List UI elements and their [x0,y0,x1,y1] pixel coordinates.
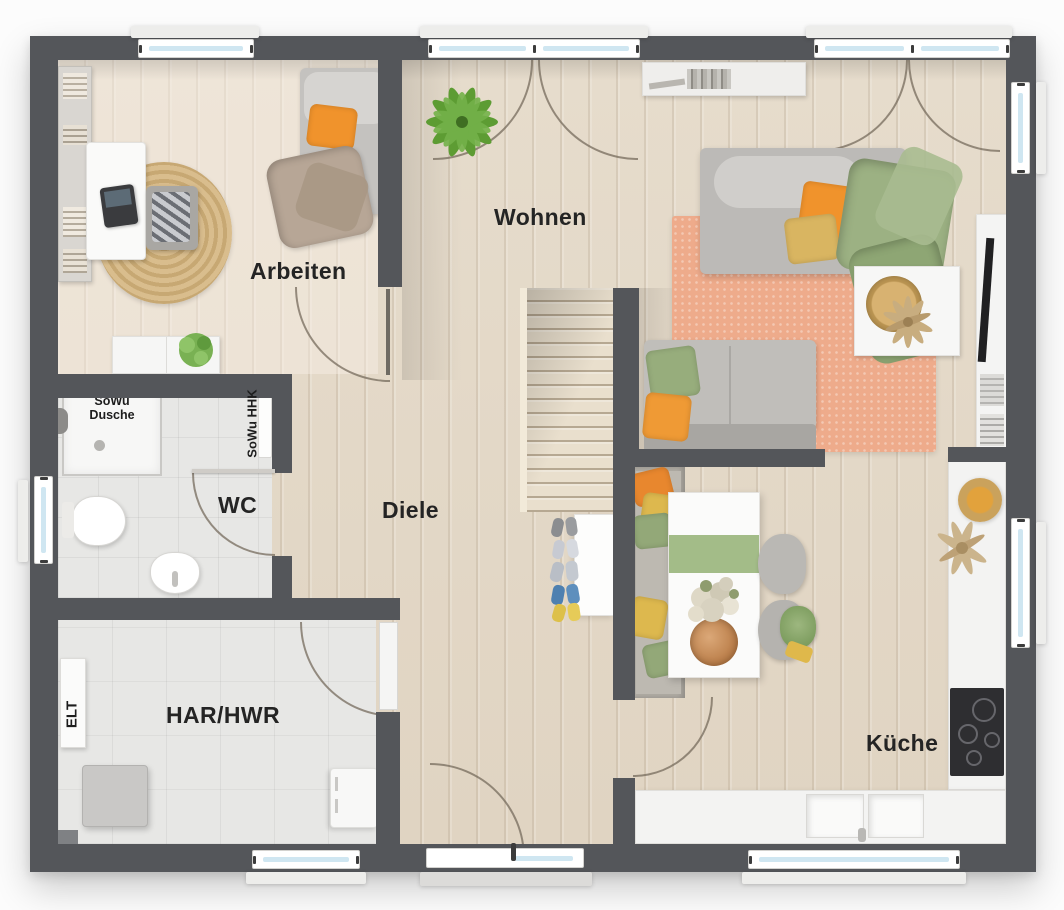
pampas-grass [882,296,934,348]
annotation-sowu-hhk: SoWu HHK [245,378,260,470]
sideboard-plant [179,333,213,367]
room-label-wohnen: Wohnen [494,204,587,231]
room-label-wc: WC [218,492,257,519]
room-label-kueche: Küche [866,730,938,757]
dining-flowers [688,577,739,622]
kitchen-dried-plant [935,520,988,576]
plants-layer [0,0,1064,910]
room-label-arbeiten: Arbeiten [250,258,347,285]
room-label-har-hwr: HAR/HWR [166,702,280,729]
fern-plant [426,85,498,158]
room-label-diele: Diele [382,497,439,524]
annotation-elt: ELT [64,685,81,745]
floor-plan: SoWu Dusche [0,0,1064,910]
